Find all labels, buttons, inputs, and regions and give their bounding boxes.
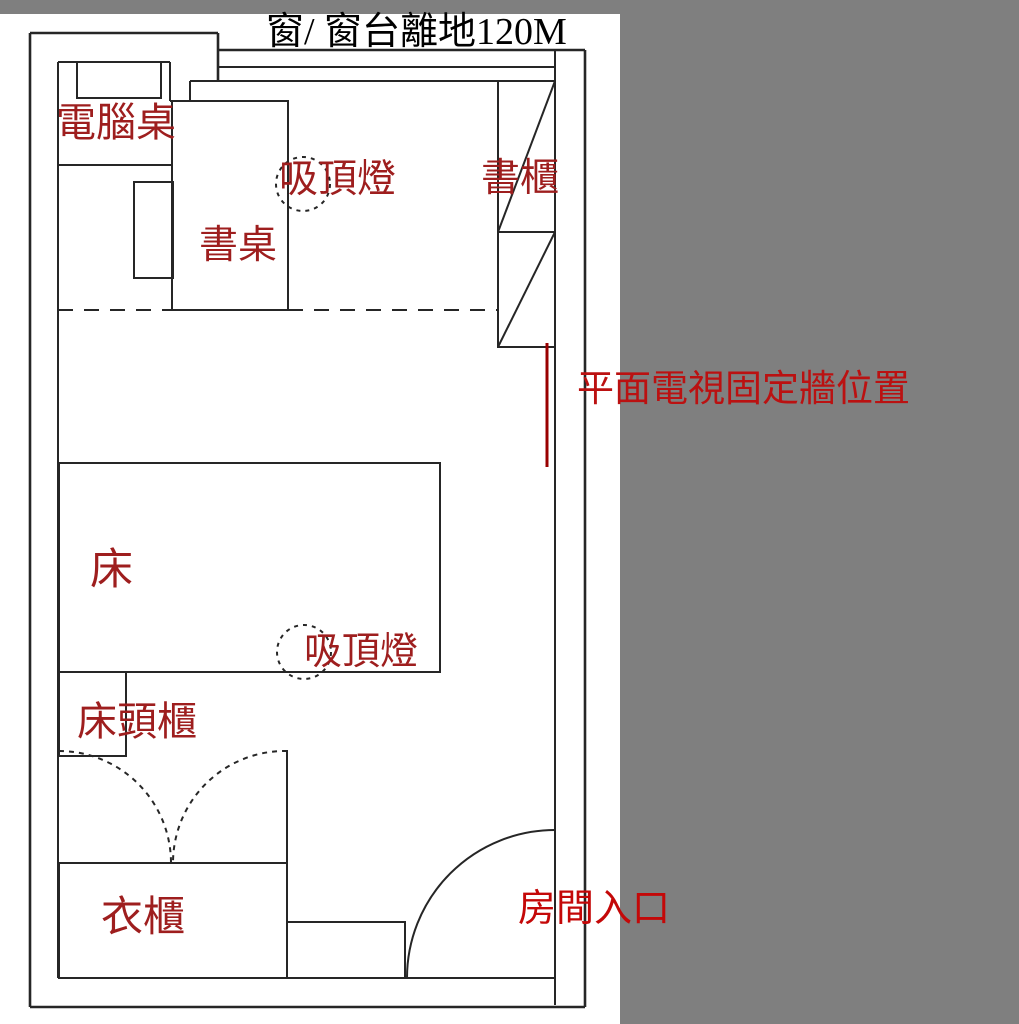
bookcase-outline: [498, 81, 555, 347]
plan-title: 窗/ 窗台離地120M: [266, 0, 567, 55]
entry-cabinet-outline: [287, 922, 405, 978]
label-tv-wall-position: 平面電視固定牆位置: [577, 371, 910, 410]
label-ceiling-lamp-bottom: 吸頂燈: [304, 633, 418, 673]
label-ceiling-lamp-top: 吸頂燈: [279, 160, 396, 201]
label-desk: 書桌: [199, 226, 277, 267]
label-room-entrance: 房間入口: [518, 890, 670, 930]
chair-outline: [134, 182, 173, 278]
wardrobe-door-arcs: [59, 751, 287, 863]
label-computer-desk: 電腦桌: [56, 102, 176, 144]
floor-plan-drawing: [0, 0, 1019, 1024]
label-bedside-table: 床頭櫃: [77, 701, 197, 743]
desk-outline: [172, 101, 288, 310]
niche-top-line: [58, 62, 170, 101]
computer-desk-outline: [77, 62, 161, 98]
label-bed: 床: [90, 548, 133, 593]
label-wardrobe: 衣櫃: [101, 896, 185, 940]
floor-plan-image: 窗/ 窗台離地120M 電腦桌 吸頂燈 書櫃 書桌 平面電視固定牆位置 床 吸頂…: [0, 0, 1019, 1024]
label-bookcase: 書櫃: [481, 159, 559, 200]
